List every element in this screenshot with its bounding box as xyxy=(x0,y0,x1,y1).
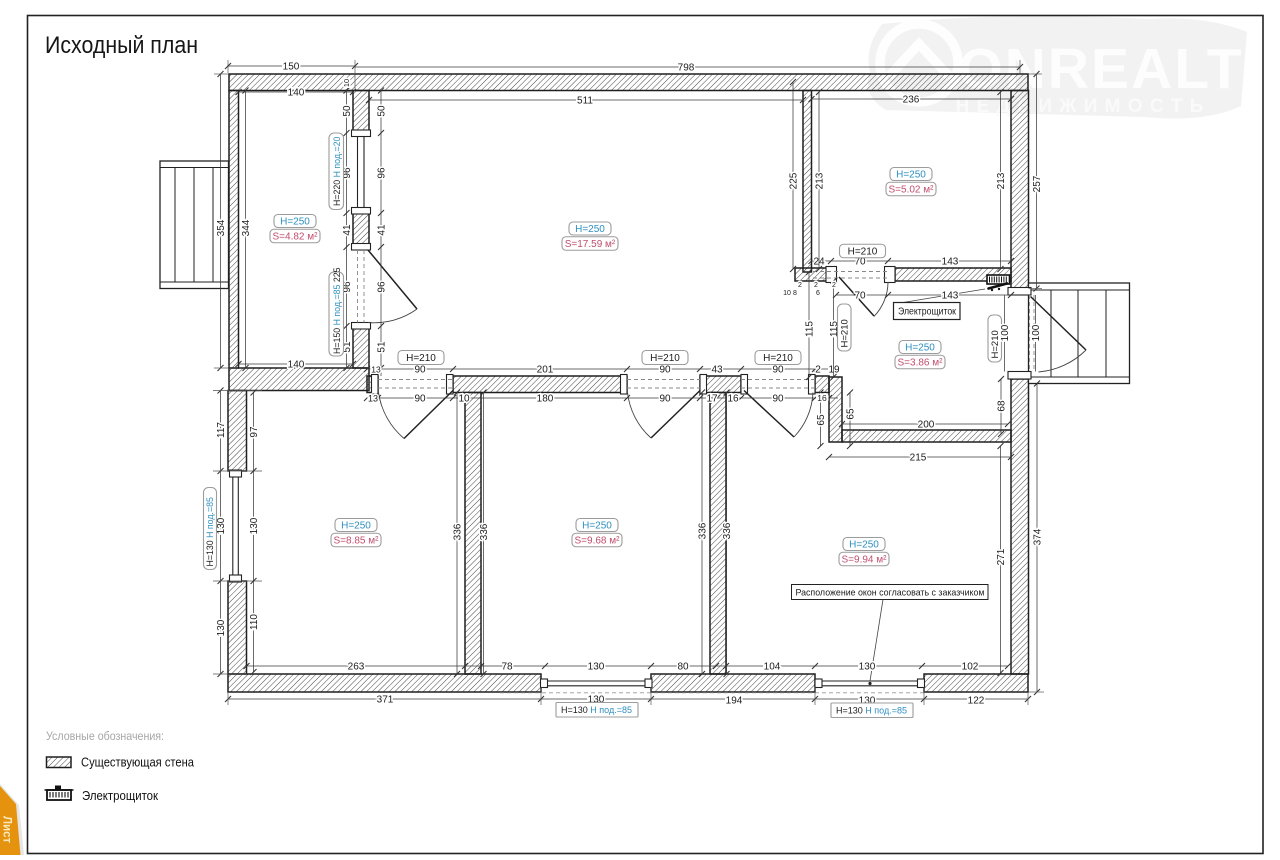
svg-text:2: 2 xyxy=(832,282,836,289)
svg-text:19: 19 xyxy=(828,364,840,375)
svg-text:263: 263 xyxy=(348,661,365,672)
svg-text:H=210: H=210 xyxy=(650,353,680,364)
svg-text:S=17.59 м²: S=17.59 м² xyxy=(565,239,616,250)
svg-text:Существующая стена: Существующая стена xyxy=(81,756,194,770)
svg-text:798: 798 xyxy=(678,62,695,73)
svg-text:130: 130 xyxy=(249,517,260,534)
svg-text:10: 10 xyxy=(342,79,351,87)
svg-text:511: 511 xyxy=(577,95,593,106)
svg-text:10: 10 xyxy=(783,290,791,297)
svg-text:225: 225 xyxy=(788,172,799,189)
svg-text:Исходный план: Исходный план xyxy=(45,32,198,59)
svg-text:336: 336 xyxy=(722,522,733,539)
svg-text:H=210: H=210 xyxy=(840,319,851,347)
svg-text:96: 96 xyxy=(376,167,387,179)
svg-text:65: 65 xyxy=(816,414,827,426)
svg-text:150: 150 xyxy=(283,61,300,72)
svg-text:41: 41 xyxy=(342,224,353,236)
svg-text:H=250: H=250 xyxy=(849,540,879,551)
svg-text:213: 213 xyxy=(996,172,1007,189)
svg-text:2: 2 xyxy=(798,282,802,289)
svg-text:104: 104 xyxy=(764,661,781,672)
svg-text:65: 65 xyxy=(845,408,856,420)
svg-text:130: 130 xyxy=(588,661,605,672)
svg-text:110: 110 xyxy=(249,614,260,630)
svg-text:96: 96 xyxy=(376,281,387,293)
svg-text:68: 68 xyxy=(996,400,1007,412)
svg-text:80: 80 xyxy=(677,661,689,672)
svg-text:8: 8 xyxy=(793,290,797,297)
svg-text:201: 201 xyxy=(537,364,554,375)
svg-text:S=8.85 м²: S=8.85 м² xyxy=(334,536,380,547)
svg-text:13: 13 xyxy=(368,394,378,404)
svg-text:H=220 Н под.=20: H=220 Н под.=20 xyxy=(332,137,342,206)
svg-text:Лист: Лист xyxy=(1,816,13,844)
svg-text:H=130 Н под.=85: H=130 Н под.=85 xyxy=(205,497,215,566)
svg-text:H=250: H=250 xyxy=(280,217,310,228)
svg-text:41: 41 xyxy=(376,224,387,236)
svg-text:122: 122 xyxy=(968,695,985,706)
svg-text:70: 70 xyxy=(854,290,866,301)
svg-text:100: 100 xyxy=(1000,324,1011,341)
svg-text:374: 374 xyxy=(1032,528,1043,545)
svg-text:78: 78 xyxy=(501,661,513,672)
svg-text:Электрощиток: Электрощиток xyxy=(898,307,957,318)
svg-text:H=150 Н под.=85 225: H=150 Н под.=85 225 xyxy=(332,267,342,354)
svg-text:90: 90 xyxy=(414,393,426,404)
svg-text:180: 180 xyxy=(537,393,554,404)
svg-text:143: 143 xyxy=(942,256,959,267)
svg-text:90: 90 xyxy=(414,364,426,375)
svg-text:16: 16 xyxy=(817,393,827,403)
svg-text:17: 17 xyxy=(706,393,718,404)
svg-text:336: 336 xyxy=(479,523,490,540)
svg-text:215: 215 xyxy=(910,452,927,463)
svg-text:90: 90 xyxy=(659,393,671,404)
svg-text:S=9.68 м²: S=9.68 м² xyxy=(575,536,621,547)
svg-text:Электрощиток: Электрощиток xyxy=(82,789,158,803)
svg-text:200: 200 xyxy=(918,419,935,430)
svg-text:97: 97 xyxy=(249,426,260,438)
svg-text:13: 13 xyxy=(371,365,381,375)
svg-text:H=250: H=250 xyxy=(905,343,935,354)
svg-text:H=130 Н под.=85: H=130 Н под.=85 xyxy=(836,706,907,716)
svg-text:S=4.82 м²: S=4.82 м² xyxy=(273,232,319,243)
svg-text:90: 90 xyxy=(659,364,671,375)
svg-text:90: 90 xyxy=(772,364,784,375)
svg-text:130: 130 xyxy=(216,619,227,636)
svg-text:194: 194 xyxy=(726,695,743,706)
svg-text:50: 50 xyxy=(376,105,387,117)
svg-text:S=3.86 м²: S=3.86 м² xyxy=(898,358,944,369)
svg-text:236: 236 xyxy=(903,94,920,105)
svg-text:130: 130 xyxy=(216,517,227,534)
svg-text:H=210: H=210 xyxy=(848,247,878,258)
svg-text:140: 140 xyxy=(288,359,305,370)
svg-text:257: 257 xyxy=(1032,175,1043,192)
svg-text:371: 371 xyxy=(377,694,394,705)
svg-text:354: 354 xyxy=(216,219,227,236)
svg-text:50: 50 xyxy=(342,105,353,117)
svg-text:S=9.94 м²: S=9.94 м² xyxy=(842,555,888,566)
svg-text:115: 115 xyxy=(804,321,815,337)
svg-text:271: 271 xyxy=(996,548,1007,565)
svg-text:344: 344 xyxy=(241,219,252,236)
svg-text:10: 10 xyxy=(458,393,470,404)
svg-text:90: 90 xyxy=(772,393,784,404)
svg-text:H=250: H=250 xyxy=(575,224,605,235)
svg-text:S=5.02 м²: S=5.02 м² xyxy=(889,185,935,196)
svg-text:16: 16 xyxy=(727,393,739,404)
svg-text:H=250: H=250 xyxy=(582,521,612,532)
svg-text:H=210: H=210 xyxy=(763,353,793,364)
svg-text:130: 130 xyxy=(859,661,876,672)
svg-text:H=250: H=250 xyxy=(896,170,926,181)
svg-text:H=130 Н под.=85: H=130 Н под.=85 xyxy=(561,705,632,715)
svg-text:51: 51 xyxy=(376,341,387,353)
svg-text:336: 336 xyxy=(697,522,708,539)
svg-text:H=250: H=250 xyxy=(341,521,371,532)
svg-text:6: 6 xyxy=(816,290,820,297)
svg-text:43: 43 xyxy=(711,364,723,375)
svg-text:Условные обозначения:: Условные обозначения: xyxy=(46,729,164,743)
svg-text:117: 117 xyxy=(216,422,227,438)
svg-text:H=210: H=210 xyxy=(406,353,436,364)
svg-text:Расположение окон согласовать: Расположение окон согласовать с заказчик… xyxy=(796,588,985,598)
svg-text:140: 140 xyxy=(288,87,305,98)
svg-text:2: 2 xyxy=(814,282,818,289)
svg-text:336: 336 xyxy=(452,523,463,540)
svg-text:143: 143 xyxy=(942,290,959,301)
svg-text:102: 102 xyxy=(962,661,979,672)
svg-text:2: 2 xyxy=(815,364,821,375)
svg-text:213: 213 xyxy=(814,172,825,189)
svg-text:100: 100 xyxy=(1031,324,1042,341)
